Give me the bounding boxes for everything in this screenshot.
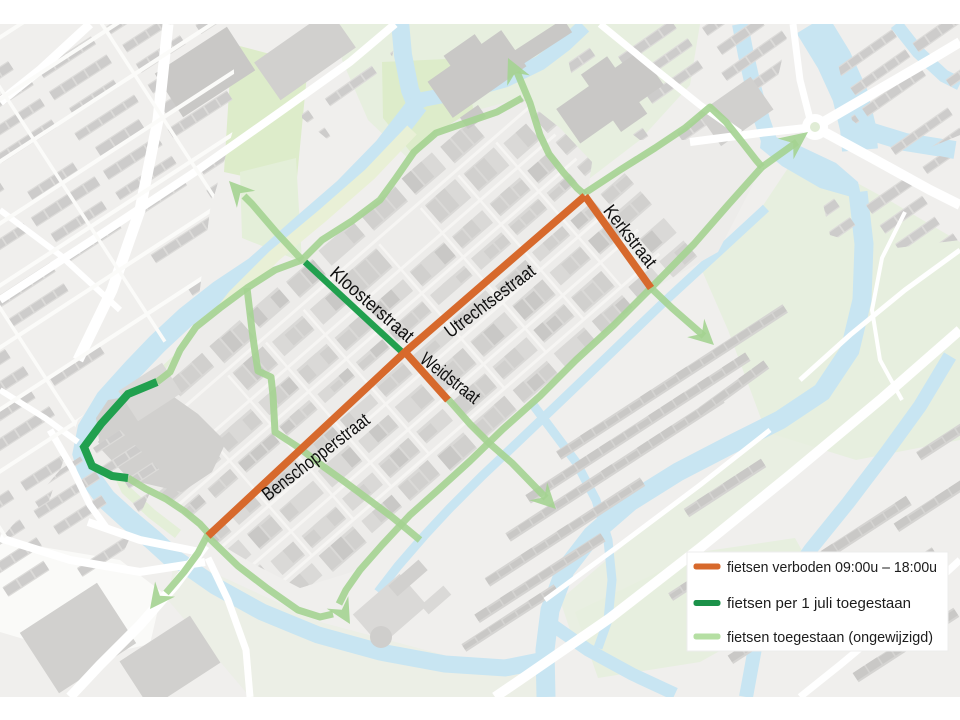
svg-text:fietsen per 1 juli toegestaan: fietsen per 1 juli toegestaan bbox=[727, 595, 911, 612]
svg-text:fietsen toegestaan (ongewijzig: fietsen toegestaan (ongewijzigd) bbox=[727, 629, 933, 646]
svg-text:fietsen verboden 09:00u – 18:0: fietsen verboden 09:00u – 18:00u bbox=[727, 559, 937, 576]
